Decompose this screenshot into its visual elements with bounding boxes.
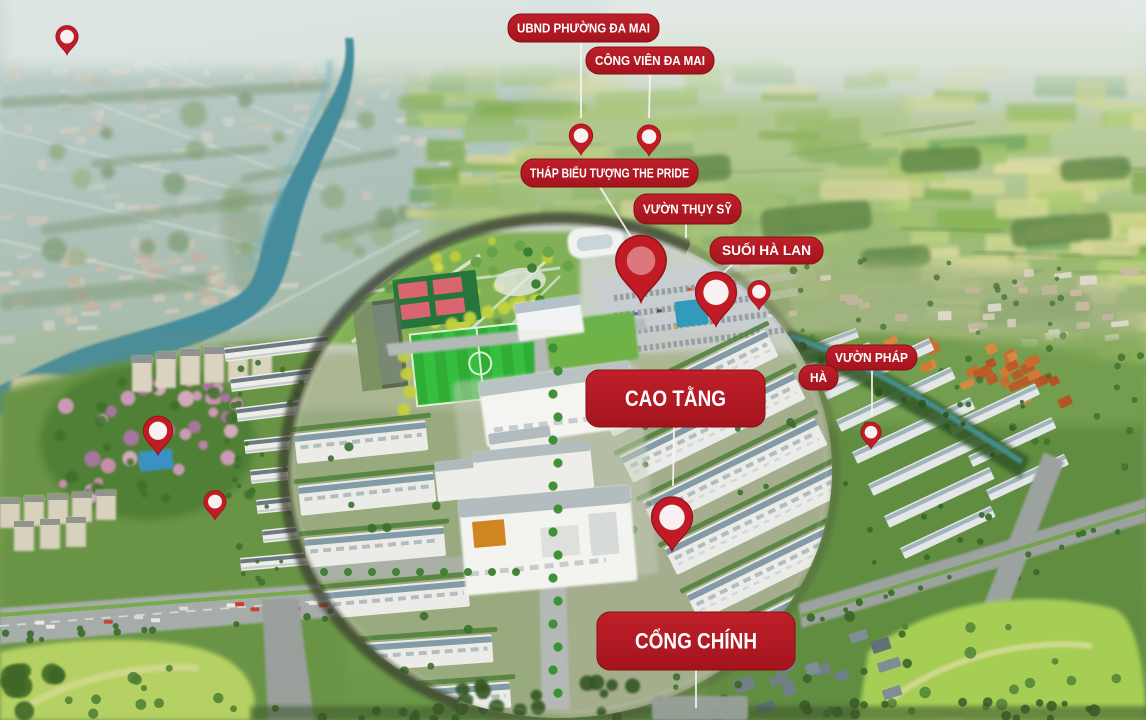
svg-text:VƯỜN PHÁP: VƯỜN PHÁP — [835, 350, 908, 365]
svg-text:CAO TẰNG: CAO TẰNG — [625, 386, 726, 411]
svg-text:THÁP BIỂU TƯỢNG THE PRIDE: THÁP BIỂU TƯỢNG THE PRIDE — [530, 165, 689, 180]
svg-text:CỔNG CHÍNH: CỔNG CHÍNH — [635, 629, 757, 654]
svg-text:HÀ: HÀ — [810, 370, 827, 385]
svg-text:CÔNG VIÊN ĐA MAI: CÔNG VIÊN ĐA MAI — [595, 53, 705, 68]
svg-text:VƯỜN THỤY SỸ: VƯỜN THỤY SỸ — [643, 202, 732, 217]
svg-text:UBND PHƯỜNG ĐA MAI: UBND PHƯỜNG ĐA MAI — [517, 20, 650, 35]
svg-text:SUỐI HÀ LAN: SUỐI HÀ LAN — [722, 243, 811, 258]
